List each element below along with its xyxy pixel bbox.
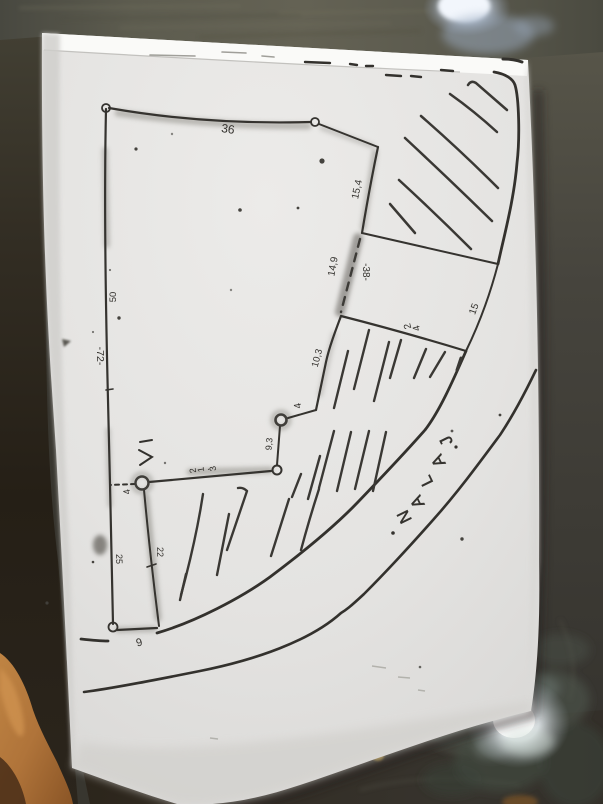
svg-text:36: 36 xyxy=(220,121,235,137)
svg-text:50: 50 xyxy=(108,292,119,303)
svg-text:22: 22 xyxy=(155,547,165,557)
svg-text:-38-: -38- xyxy=(360,263,371,281)
svg-text:9,3: 9,3 xyxy=(263,437,274,450)
svg-text:-72-: -72- xyxy=(94,347,106,366)
svg-text:25: 25 xyxy=(114,554,124,564)
